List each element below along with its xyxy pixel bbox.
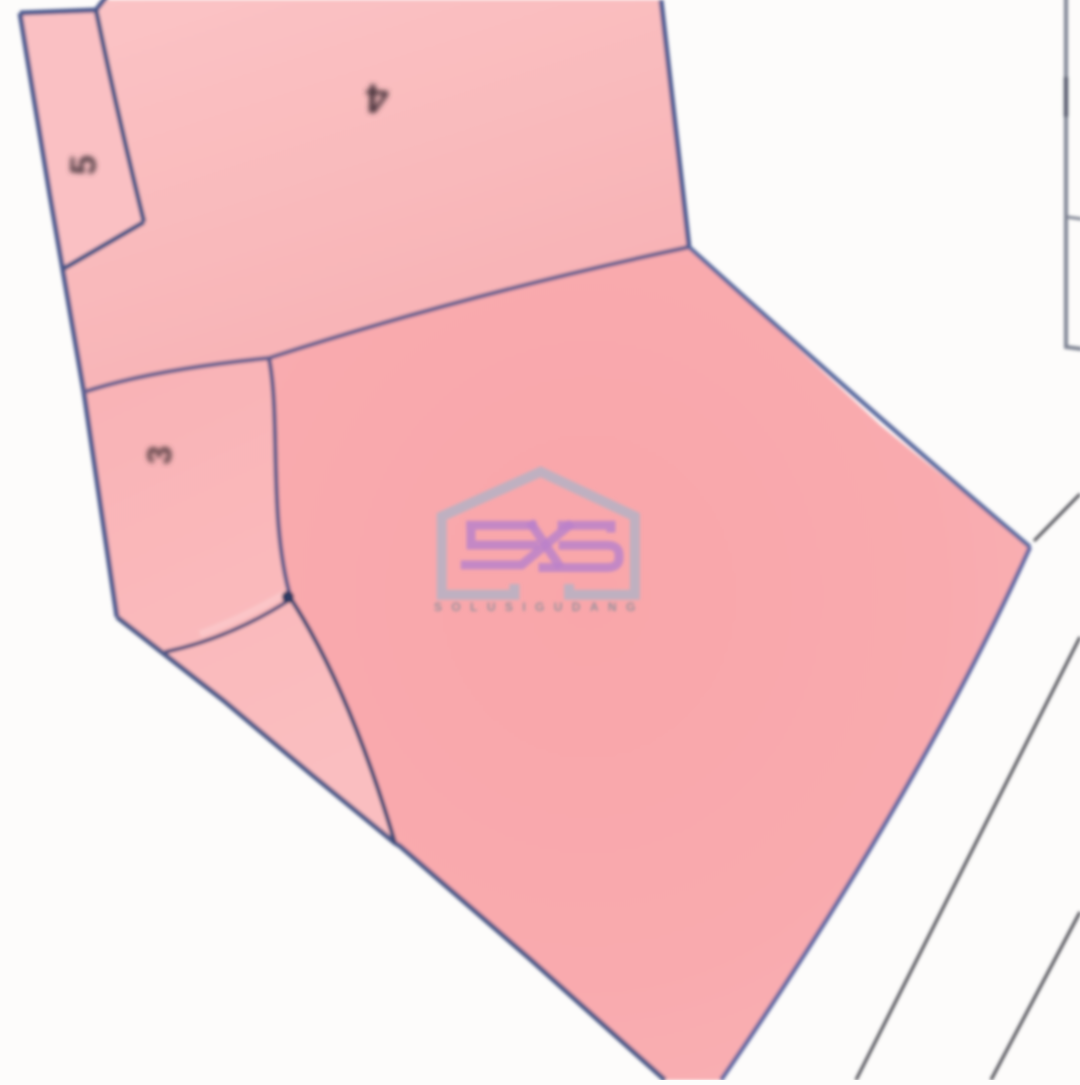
svg-text:GUDANG: GUDANG <box>535 600 645 614</box>
svg-text:5: 5 <box>62 154 104 175</box>
svg-text:SOLUSI: SOLUSI <box>434 600 535 614</box>
svg-text:4: 4 <box>364 75 389 122</box>
svg-text:3: 3 <box>141 445 180 465</box>
